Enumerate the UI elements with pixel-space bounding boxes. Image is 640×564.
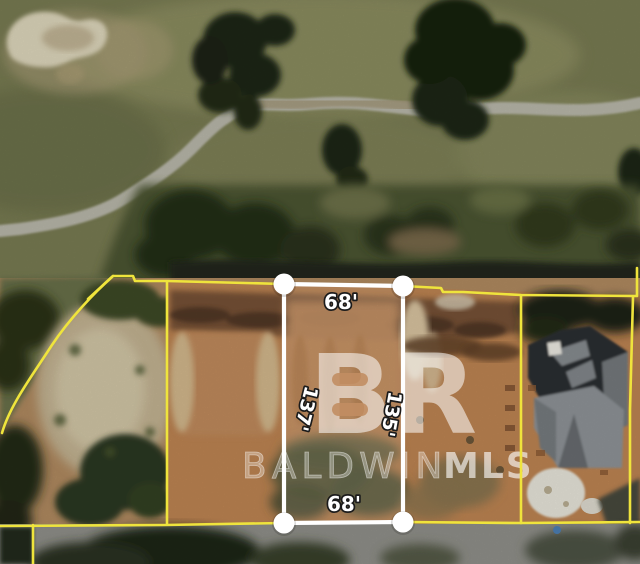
aerial-photo-canvas: BR BALDWIN MLS 68' 68' 137' 13 bbox=[0, 0, 640, 564]
dimension-label-top: 68' bbox=[324, 290, 358, 314]
corner-marker-ne bbox=[393, 276, 414, 297]
mls-aerial-lot-photo: BR BALDWIN MLS 68' 68' 137' 13 bbox=[0, 0, 640, 564]
corner-marker-nw bbox=[274, 274, 295, 295]
corner-marker-se bbox=[393, 512, 414, 533]
dimension-label-bottom: 68' bbox=[327, 492, 361, 516]
corner-marker-sw bbox=[274, 513, 295, 534]
